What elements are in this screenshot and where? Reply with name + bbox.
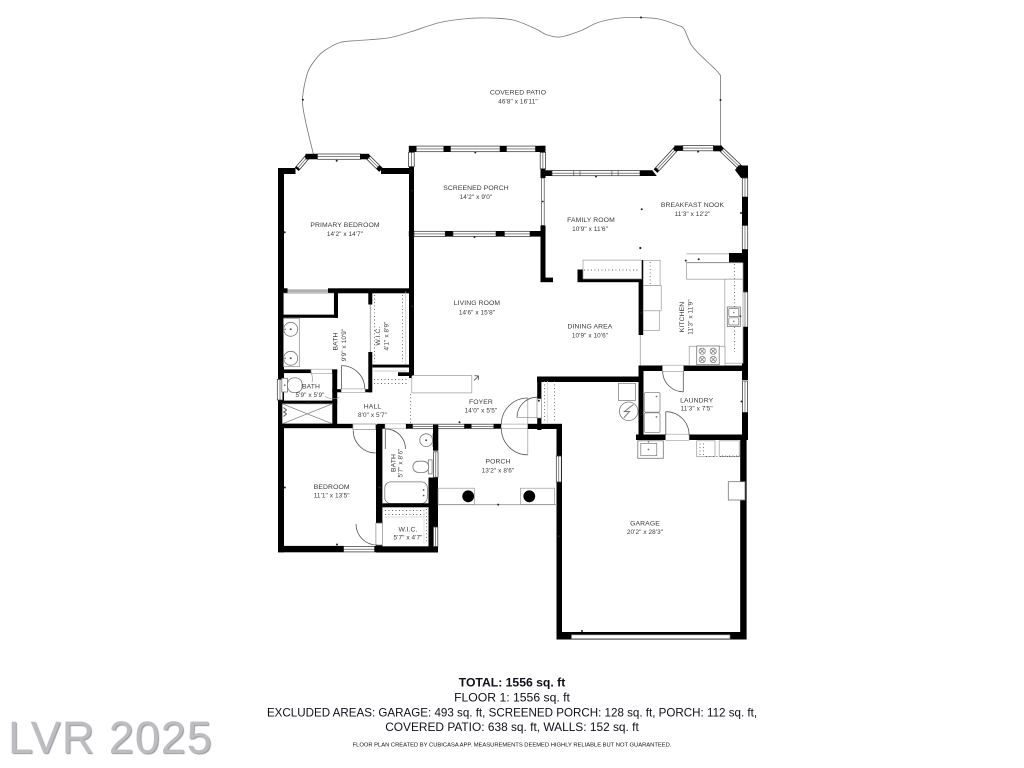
svg-text:14'2" x 14'7": 14'2" x 14'7"	[327, 231, 363, 238]
svg-text:20'2" x 28'3": 20'2" x 28'3"	[627, 529, 663, 536]
svg-text:14'6" x 15'8": 14'6" x 15'8"	[459, 310, 495, 317]
svg-text:14'0" x 5'5": 14'0" x 5'5"	[465, 408, 498, 415]
svg-text:HALL: HALL	[364, 404, 382, 411]
svg-text:GARAGE: GARAGE	[630, 521, 660, 528]
svg-text:PORCH: PORCH	[485, 459, 510, 466]
svg-text:BATH: BATH	[302, 384, 320, 391]
svg-text:11'3" x 7'5": 11'3" x 7'5"	[681, 406, 713, 413]
svg-text:W.I.C.: W.I.C.	[375, 326, 382, 345]
svg-text:TOTAL: 1556 sq. ft: TOTAL: 1556 sq. ft	[459, 676, 566, 690]
svg-text:W.I.C.: W.I.C.	[398, 527, 417, 534]
svg-text:PRIMARY BEDROOM: PRIMARY BEDROOM	[310, 222, 379, 229]
svg-text:8'0" x 5'7": 8'0" x 5'7"	[358, 412, 387, 419]
svg-text:9'9" x 10'9": 9'9" x 10'9"	[341, 329, 348, 362]
svg-text:BEDROOM: BEDROOM	[314, 484, 350, 491]
svg-text:5'9" x 5'9": 5'9" x 5'9"	[295, 392, 324, 399]
svg-text:4'1" x 8'9": 4'1" x 8'9"	[384, 321, 391, 350]
svg-text:46'8" x 16'11": 46'8" x 16'11"	[498, 99, 538, 106]
svg-text:10'9" x 11'6": 10'9" x 11'6"	[572, 226, 608, 233]
svg-text:11'3" x 11'9": 11'3" x 11'9"	[687, 299, 694, 334]
svg-text:13'2" x 8'6": 13'2" x 8'6"	[482, 468, 515, 475]
svg-text:11'1" x 13'5": 11'1" x 13'5"	[314, 493, 350, 500]
svg-text:FLOOR PLAN CREATED BY CUBICASA: FLOOR PLAN CREATED BY CUBICASA APP. MEAS…	[353, 742, 672, 748]
svg-text:FLOOR 1: 1556 sq. ft: FLOOR 1: 1556 sq. ft	[454, 691, 570, 705]
svg-text:5'7" x 8'6": 5'7" x 8'6"	[398, 448, 405, 477]
svg-text:COVERED PATIO: 638 sq. ft, WAL: COVERED PATIO: 638 sq. ft, WALLS: 152 sq…	[385, 720, 639, 734]
svg-text:LVR 2025: LVR 2025	[8, 712, 213, 763]
svg-text:11'3" x 12'2": 11'3" x 12'2"	[675, 211, 711, 218]
svg-text:LIVING ROOM: LIVING ROOM	[454, 300, 501, 307]
svg-text:EXCLUDED AREAS: GARAGE: 493 sq: EXCLUDED AREAS: GARAGE: 493 sq. ft, SCRE…	[267, 707, 757, 720]
svg-text:BATH: BATH	[332, 332, 339, 350]
svg-text:FOYER: FOYER	[469, 399, 493, 406]
svg-text:5'7" x 4'7": 5'7" x 4'7"	[393, 534, 422, 541]
svg-text:SCREENED PORCH: SCREENED PORCH	[443, 185, 509, 192]
svg-text:BREAKFAST NOOK: BREAKFAST NOOK	[661, 202, 725, 209]
svg-text:DINING AREA: DINING AREA	[568, 324, 613, 331]
svg-text:COVERED PATIO: COVERED PATIO	[490, 90, 546, 97]
svg-text:14'2" x 9'0": 14'2" x 9'0"	[460, 194, 493, 201]
svg-text:BATH: BATH	[390, 454, 397, 472]
svg-text:FAMILY ROOM: FAMILY ROOM	[567, 217, 615, 224]
svg-text:LAUNDRY: LAUNDRY	[680, 398, 713, 405]
svg-text:KITCHEN: KITCHEN	[679, 302, 686, 333]
svg-text:10'9" x 10'6": 10'9" x 10'6"	[572, 333, 608, 340]
